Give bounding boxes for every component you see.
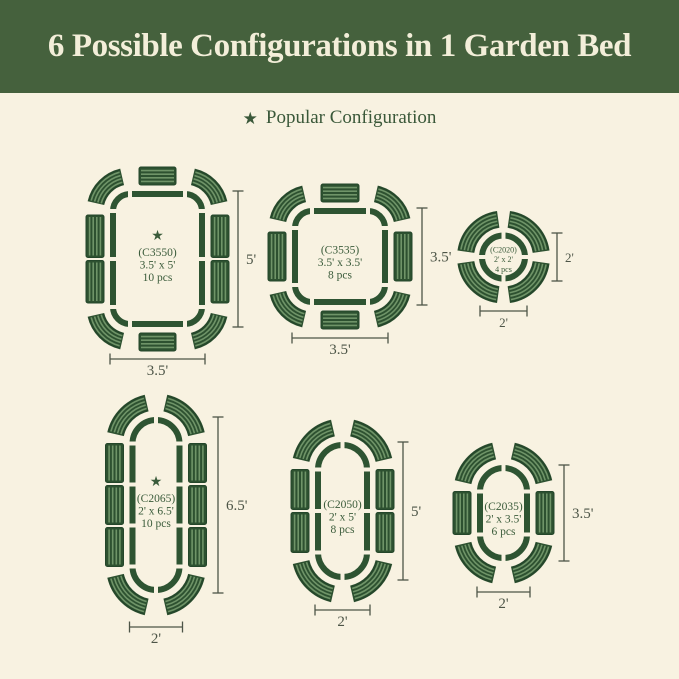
config-code: (C2065): [137, 493, 176, 505]
dimension-label: 2': [499, 315, 508, 330]
side-panel: [189, 528, 207, 567]
dimension-label: 3.5': [329, 342, 351, 358]
side-panel: [189, 444, 207, 483]
dimension-label: 3.5': [572, 506, 594, 522]
side-panel: [211, 215, 229, 258]
side-panel: [394, 232, 412, 281]
corner-panel: [164, 396, 203, 435]
side-panel: [291, 513, 309, 553]
side-panel: [139, 167, 176, 185]
corner-panel: [508, 262, 548, 302]
side-panel: [321, 311, 359, 329]
config-labels: (C2020)2' x 2'4 pcs: [490, 246, 517, 275]
corner-panel: [109, 575, 148, 614]
config-code: (C2050): [323, 499, 362, 511]
dimension-label: 2': [337, 614, 348, 630]
side-panel: [139, 333, 176, 351]
dimension-label: 5': [246, 252, 257, 268]
config-C2020: (C2020)2' x 2'4 pcs2'2': [459, 212, 574, 330]
side-panel: [86, 215, 104, 258]
side-panel: [86, 261, 104, 304]
config-pieces: 10 pcs: [143, 272, 173, 284]
side-panel: [268, 232, 286, 281]
side-panel: [106, 528, 124, 567]
dimension-label: 3.5': [147, 363, 169, 379]
dimension-lines: 3.5'3.5': [292, 208, 452, 358]
dimension-label: 2': [498, 596, 509, 612]
dimension-lines: 3.5'2': [477, 465, 594, 612]
side-panel: [291, 470, 309, 510]
side-panel: [211, 261, 229, 304]
corner-panel: [109, 396, 148, 435]
dimension-label: 2': [565, 250, 574, 265]
config-size: 2' x 3.5': [486, 514, 522, 526]
config-pieces: 4 pcs: [495, 265, 512, 274]
side-panel: [189, 486, 207, 525]
configurations-diagram: ★(C3550)3.5' x 5'10 pcs5'3.5'(C3535)3.5'…: [0, 0, 679, 679]
config-size: 2' x 5': [329, 512, 356, 524]
infographic-page: 6 Possible Configurations in 1 Garden Be…: [0, 0, 679, 679]
corner-panel: [351, 561, 391, 601]
corner-panel: [294, 561, 334, 601]
corner-panel: [459, 262, 499, 302]
config-labels: (C3535)3.5' x 3.5'8 pcs: [318, 245, 362, 282]
popular-star-icon: ★: [151, 229, 164, 244]
config-size: 3.5' x 3.5': [318, 257, 362, 269]
config-labels: ★(C3550)3.5' x 5'10 pcs: [138, 229, 177, 284]
config-pieces: 6 pcs: [492, 526, 516, 538]
config-C3535: (C3535)3.5' x 3.5'8 pcs3.5'3.5': [268, 184, 452, 358]
dimension-label: 6.5': [226, 498, 248, 514]
popular-star-icon: ★: [150, 475, 163, 490]
corner-panel: [512, 444, 551, 483]
config-size: 2' x 6.5': [138, 506, 174, 518]
config-size: 2' x 2': [494, 255, 513, 264]
config-labels: (C2050)2' x 5'8 pcs: [323, 499, 362, 536]
config-size: 3.5' x 5': [140, 260, 176, 272]
config-labels: (C2035)2' x 3.5'6 pcs: [484, 501, 523, 538]
corner-panel: [456, 543, 495, 582]
config-code: (C2020): [490, 246, 517, 255]
dimension-label: 2': [151, 631, 162, 647]
config-code: (C3550): [138, 247, 177, 259]
dimension-label: 3.5': [430, 250, 452, 266]
config-pieces: 8 pcs: [328, 270, 352, 282]
config-pieces: 8 pcs: [331, 524, 355, 536]
corner-panel: [512, 543, 551, 582]
side-panel: [376, 513, 394, 553]
side-panel: [376, 470, 394, 510]
config-code: (C2035): [484, 501, 523, 513]
config-C3550: ★(C3550)3.5' x 5'10 pcs5'3.5': [86, 167, 257, 379]
corner-panel: [164, 575, 203, 614]
corner-panel: [456, 444, 495, 483]
config-C2065: ★(C2065)2' x 6.5'10 pcs6.5'2': [106, 396, 248, 647]
config-C2050: (C2050)2' x 5'8 pcs5'2': [291, 421, 422, 630]
side-panel: [321, 184, 359, 202]
side-panel: [106, 486, 124, 525]
side-panel: [453, 492, 471, 535]
corner-panel: [294, 421, 334, 461]
side-panel: [106, 444, 124, 483]
config-code: (C3535): [321, 245, 360, 257]
config-labels: ★(C2065)2' x 6.5'10 pcs: [137, 475, 176, 530]
corner-panel: [351, 421, 391, 461]
config-C2035: (C2035)2' x 3.5'6 pcs3.5'2': [453, 444, 594, 612]
dimension-lines: 5'3.5': [110, 191, 257, 379]
dimension-label: 5': [411, 504, 422, 520]
side-panel: [536, 492, 554, 535]
config-pieces: 10 pcs: [141, 518, 171, 530]
